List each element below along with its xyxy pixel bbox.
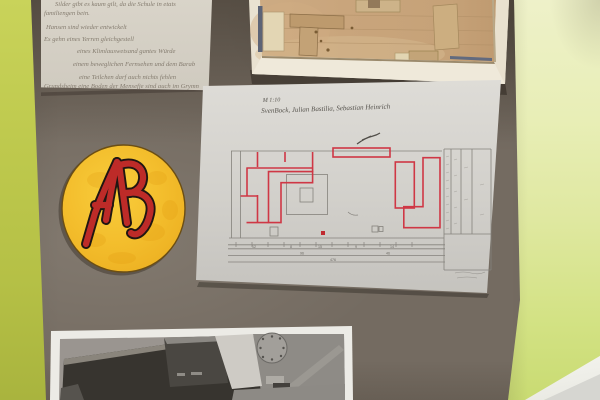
- svg-text:9: 9: [355, 245, 357, 249]
- svg-text:Hansen sind wieder entwickelt: Hansen sind wieder entwickelt: [45, 24, 127, 31]
- svg-text:Silder gibt es kaum gilt, da d: Silder gibt es kaum gilt, da die Schule …: [55, 1, 176, 8]
- svg-text:eines Klimlauswetsand gantes W: eines Klimlauswetsand gantes Würde: [77, 48, 176, 55]
- svg-text:96: 96: [300, 252, 304, 256]
- svg-text:12: 12: [252, 245, 256, 249]
- svg-text:einem beweglichen Fernsehen un: einem beweglichen Fernsehen und dem Bara…: [73, 61, 196, 68]
- svg-text:15: 15: [318, 245, 322, 249]
- svg-text:46: 46: [386, 252, 390, 256]
- svg-text:Grundsheim eine Boden der Mens: Grundsheim eine Boden der Mensefje sind …: [44, 83, 200, 90]
- svg-text:14: 14: [390, 245, 394, 249]
- svg-text:familiengen bein.: familiengen bein.: [44, 10, 90, 17]
- svg-text:Es gehn eines Yerren gleichges: Es gehn eines Yerren gleichgestell: [43, 36, 134, 43]
- svg-text:8: 8: [290, 245, 292, 249]
- svg-text:M 1:10: M 1:10: [262, 97, 281, 104]
- svg-text:476: 476: [330, 258, 336, 262]
- svg-text:eine Teilchen darf auch nichts: eine Teilchen darf auch nichts fehlen: [79, 74, 177, 81]
